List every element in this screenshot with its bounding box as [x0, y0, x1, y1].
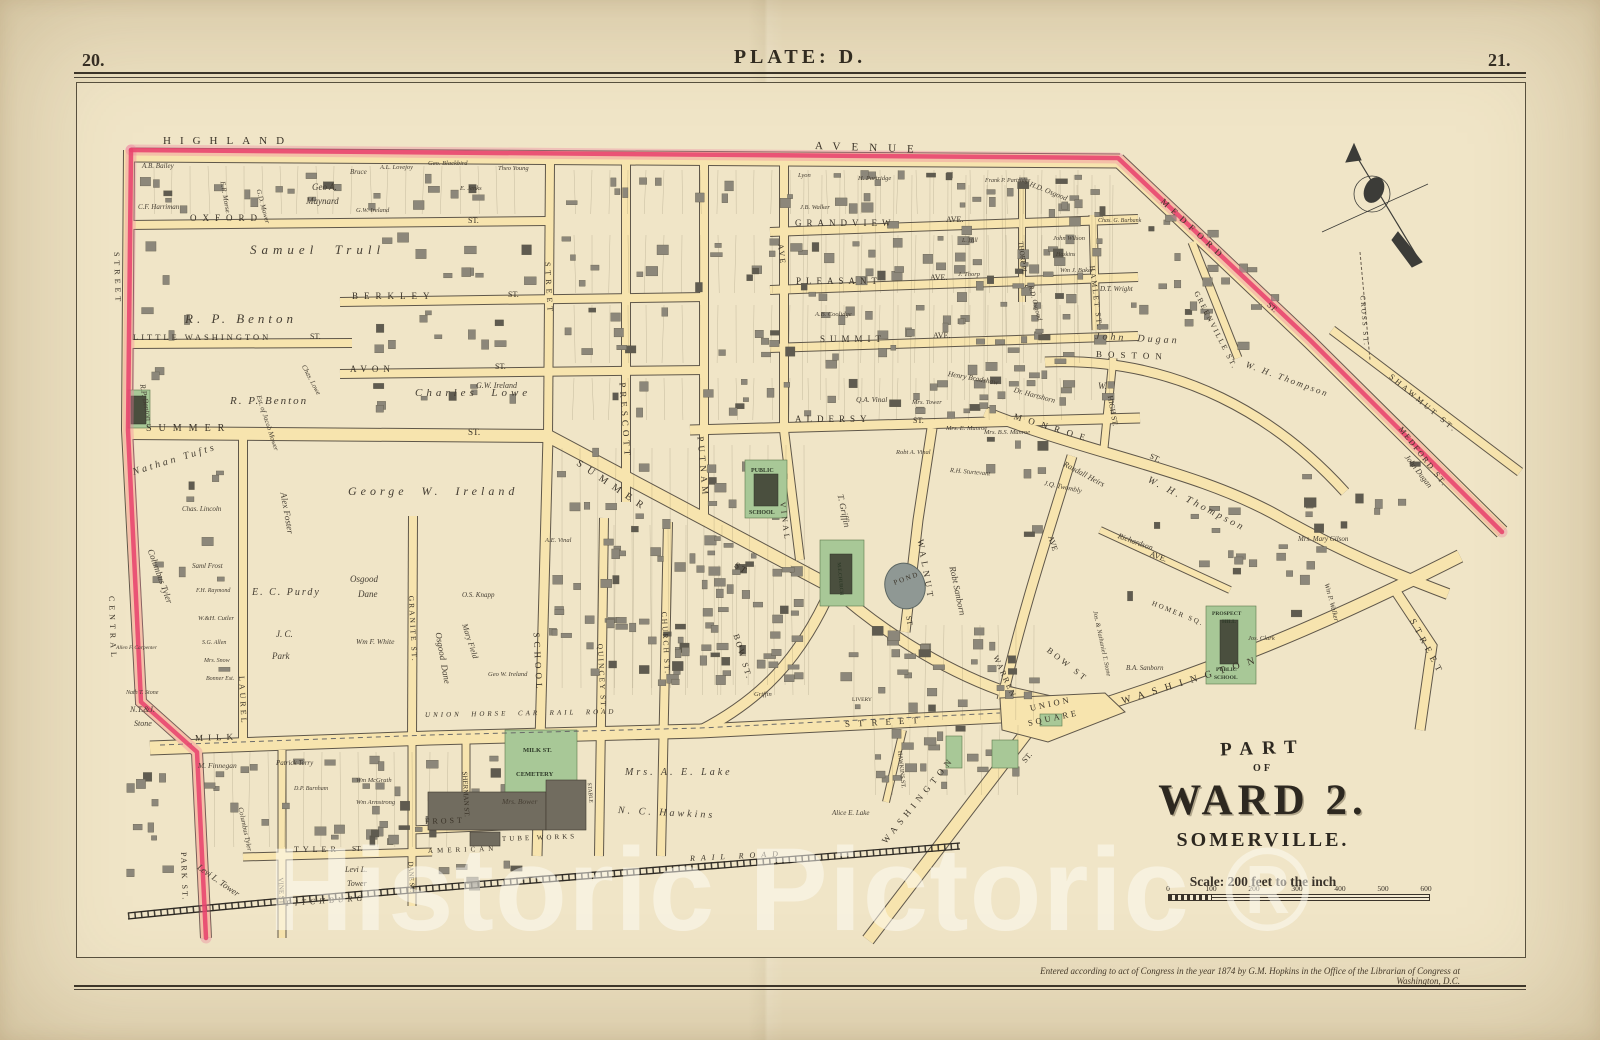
scale-tick: 200 — [1248, 884, 1259, 893]
compass-north-arrow-icon — [1322, 144, 1428, 267]
pond — [880, 559, 931, 614]
title-of: OF — [1138, 763, 1388, 774]
cross-st-dashed — [1360, 252, 1370, 360]
scale-bar-midline — [1212, 897, 1429, 898]
atlas-page: { "page": { "left_page_number": "20.", "… — [0, 0, 1600, 1040]
map-subtitle: SOMERVILLE. — [1138, 829, 1388, 852]
title-block: PART OF WARD 2. SOMERVILLE. Scale: 200 f… — [1138, 738, 1388, 890]
scale-tick: 0 — [1166, 884, 1170, 893]
copyright-line: Entered according to act of Congress in … — [1010, 966, 1460, 986]
scale-bar-checker — [1169, 895, 1212, 900]
scale-bar-rule — [1168, 894, 1430, 901]
bottom-rule-thin — [74, 989, 1526, 990]
title-part: PART — [1138, 734, 1389, 765]
scale-tick: 100 — [1205, 884, 1216, 893]
scale-bar: 0100200300400500600 — [1168, 884, 1430, 902]
union-square-plaza — [1000, 693, 1125, 742]
scale-tick: 500 — [1377, 884, 1388, 893]
bottom-rule — [74, 985, 1526, 987]
map-title: WARD 2. — [1138, 776, 1388, 825]
scale-tick: 600 — [1420, 884, 1431, 893]
scale-tick: 400 — [1334, 884, 1345, 893]
scale-tick: 300 — [1291, 884, 1302, 893]
